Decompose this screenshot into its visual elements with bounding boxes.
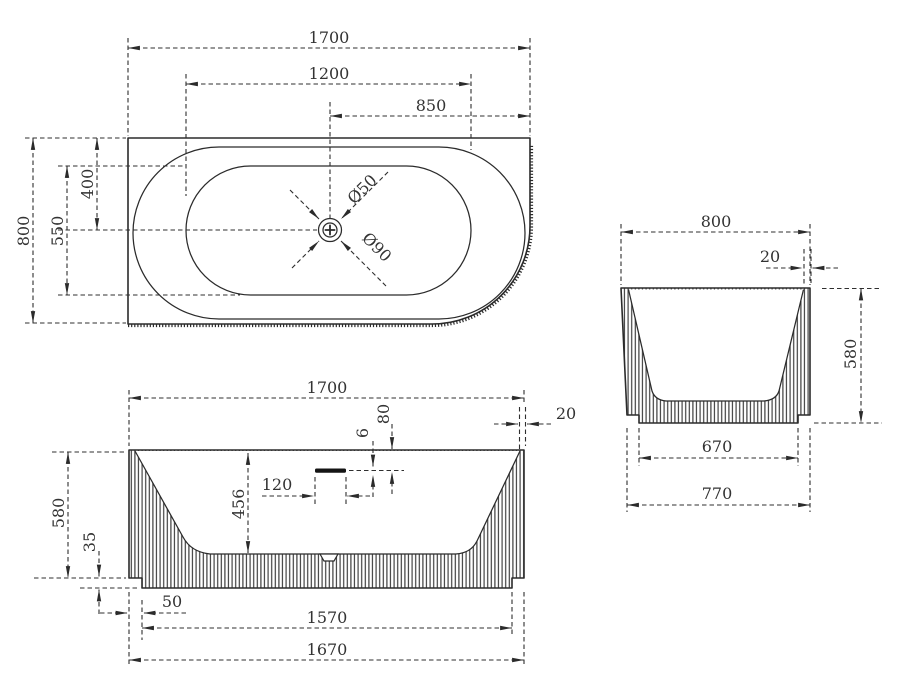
overflow-slot (315, 469, 346, 473)
dim-label-front-base-length: 1570 (307, 608, 348, 627)
dim-label-front-overflow-slot-height: 6 (353, 428, 372, 438)
dim-label-plan-drain-to-end: 850 (416, 96, 447, 115)
dim-label-side-shell-bottom-width: 770 (702, 484, 733, 503)
dim-label-plan-basin-width: 550 (48, 216, 67, 247)
dim-label-front-base-recess-height: 35 (80, 532, 99, 552)
dim-label-front-overall-height: 580 (49, 498, 68, 529)
dim-label-front-rim-thickness: 20 (556, 404, 576, 423)
dim-label-front-overall-length: 1700 (307, 378, 348, 397)
dim-label-side-overall-height: 580 (841, 339, 860, 370)
dim-label-front-shell-bottom-length: 1670 (307, 640, 348, 659)
dim-label-plan-back-to-drain: 400 (78, 169, 97, 200)
page-background (0, 0, 900, 699)
dim-label-plan-overall-length: 1700 (309, 28, 350, 47)
bathtub-technical-drawing: 1700 1200 850 800 550 400 Ø50 Ø90 (0, 0, 900, 699)
dim-label-front-basin-depth: 456 (229, 489, 248, 520)
dim-label-plan-overall-width: 800 (14, 216, 33, 247)
dim-label-front-overflow-width: 120 (262, 475, 293, 494)
dim-label-front-base-inset: 50 (162, 592, 182, 611)
dim-label-plan-basin-length: 1200 (309, 64, 350, 83)
dim-label-side-overall-width: 800 (701, 212, 732, 231)
drawing-canvas: 1700 1200 850 800 550 400 Ø50 Ø90 (0, 0, 900, 699)
dim-label-front-rim-to-overflow: 80 (374, 404, 393, 424)
dim-label-side-rim-thickness: 20 (760, 247, 780, 266)
dim-label-side-base-width: 670 (702, 437, 733, 456)
